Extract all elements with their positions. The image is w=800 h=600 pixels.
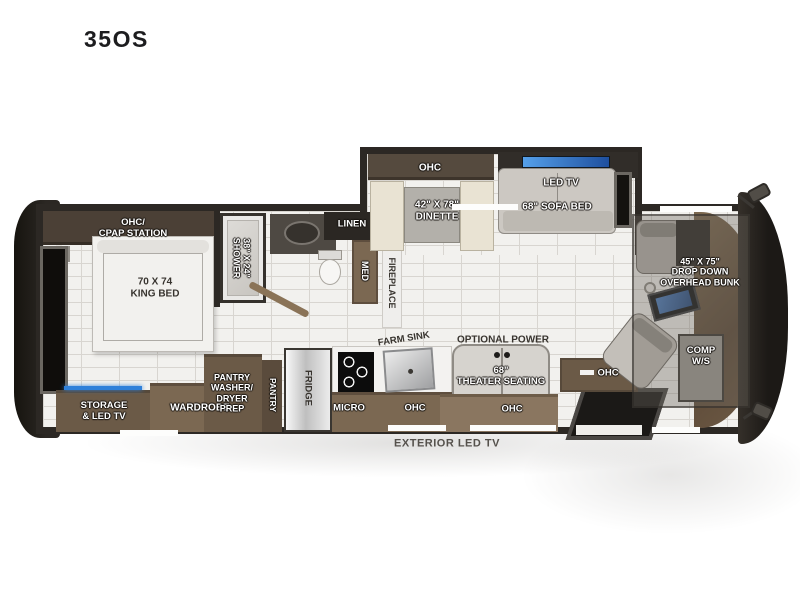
- label-fridge: FRIDGE: [302, 370, 313, 406]
- cup-holder-icon: [504, 352, 510, 358]
- exterior-trim-light: [470, 425, 556, 431]
- led-light-strip: [64, 386, 142, 390]
- label-ohc-cpap-station: OHC/ CPAP STATION: [99, 218, 167, 240]
- label-linen: LINEN: [338, 220, 367, 231]
- label-pantry: PANTRY: [267, 378, 277, 412]
- label-microwave: MICRO: [333, 404, 365, 415]
- entry-grab-handle: [580, 370, 594, 375]
- dinette-bench-left: [370, 181, 404, 251]
- label-med-cabinet: MED: [360, 261, 370, 281]
- label-exterior-led-tv: EXTERIOR LED TV: [394, 438, 500, 451]
- sofa-seat-cushion: [503, 211, 613, 231]
- label-king-bed: 70 X 74 KING BED: [131, 277, 180, 300]
- slide-window: [614, 172, 632, 228]
- label-overhead-bunk: 45" X 75" DROP DOWN OVERHEAD BUNK: [660, 256, 740, 287]
- led-tv-screen: [522, 156, 610, 168]
- label-fireplace: FIREPLACE: [387, 257, 397, 308]
- bath-sink: [284, 221, 320, 245]
- label-slide-ohc: OHC: [419, 162, 441, 174]
- faucet-icon: [408, 369, 413, 374]
- label-led-tv: LED TV: [543, 177, 579, 189]
- exterior-trim-light: [120, 430, 178, 436]
- rear-window: [40, 246, 68, 394]
- exterior-trim-light: [452, 204, 518, 210]
- entry-door-opening: [576, 425, 642, 435]
- label-storage-led-tv: STORAGE & LED TV: [81, 401, 128, 423]
- cup-holder-icon: [494, 352, 500, 358]
- floorplan-model-title: 35OS: [84, 26, 149, 53]
- label-theater-ohc: OHC: [501, 405, 522, 416]
- label-entry-ohc: OHC: [597, 369, 618, 380]
- label-dinette: 42" X 78" DINETTE: [415, 200, 459, 223]
- label-comp-workstation: COMP W/S: [687, 346, 716, 368]
- label-optional-power: OPTIONAL POWER: [457, 334, 549, 346]
- bed-pillows: [97, 240, 209, 253]
- farm-sink-basin: [383, 347, 436, 392]
- label-shower: 38" X 24" SHOWER: [231, 238, 252, 279]
- label-kitchen-ohc: OHC: [404, 404, 425, 415]
- exterior-trim-light: [660, 206, 732, 212]
- label-pantry-washer-dryer-prep: PANTRY WASHER/ DRYER PREP: [211, 372, 253, 413]
- label-sofa-bed: 68" SOFA BED: [522, 201, 591, 213]
- drop-down-bunk-area: [632, 214, 750, 408]
- exterior-trim-light: [388, 425, 446, 431]
- dinette-bench-right: [460, 181, 494, 251]
- toilet-bowl: [319, 259, 341, 285]
- floorplan-canvas: 35OS: [0, 0, 800, 600]
- label-theater-seating: 68" THEATER SEATING: [457, 366, 545, 388]
- cooktop: [338, 352, 374, 392]
- exterior-trim-light: [652, 427, 700, 433]
